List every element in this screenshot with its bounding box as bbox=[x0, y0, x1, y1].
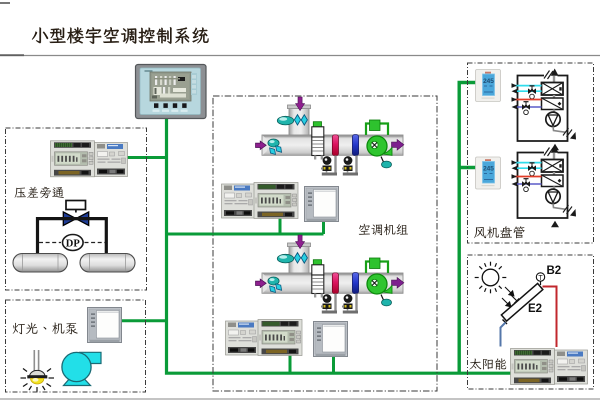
svg-text:E2: E2 bbox=[528, 303, 542, 315]
svg-text:DP: DP bbox=[66, 238, 81, 249]
svg-text:T: T bbox=[538, 275, 543, 282]
svg-text:B2: B2 bbox=[547, 265, 562, 277]
